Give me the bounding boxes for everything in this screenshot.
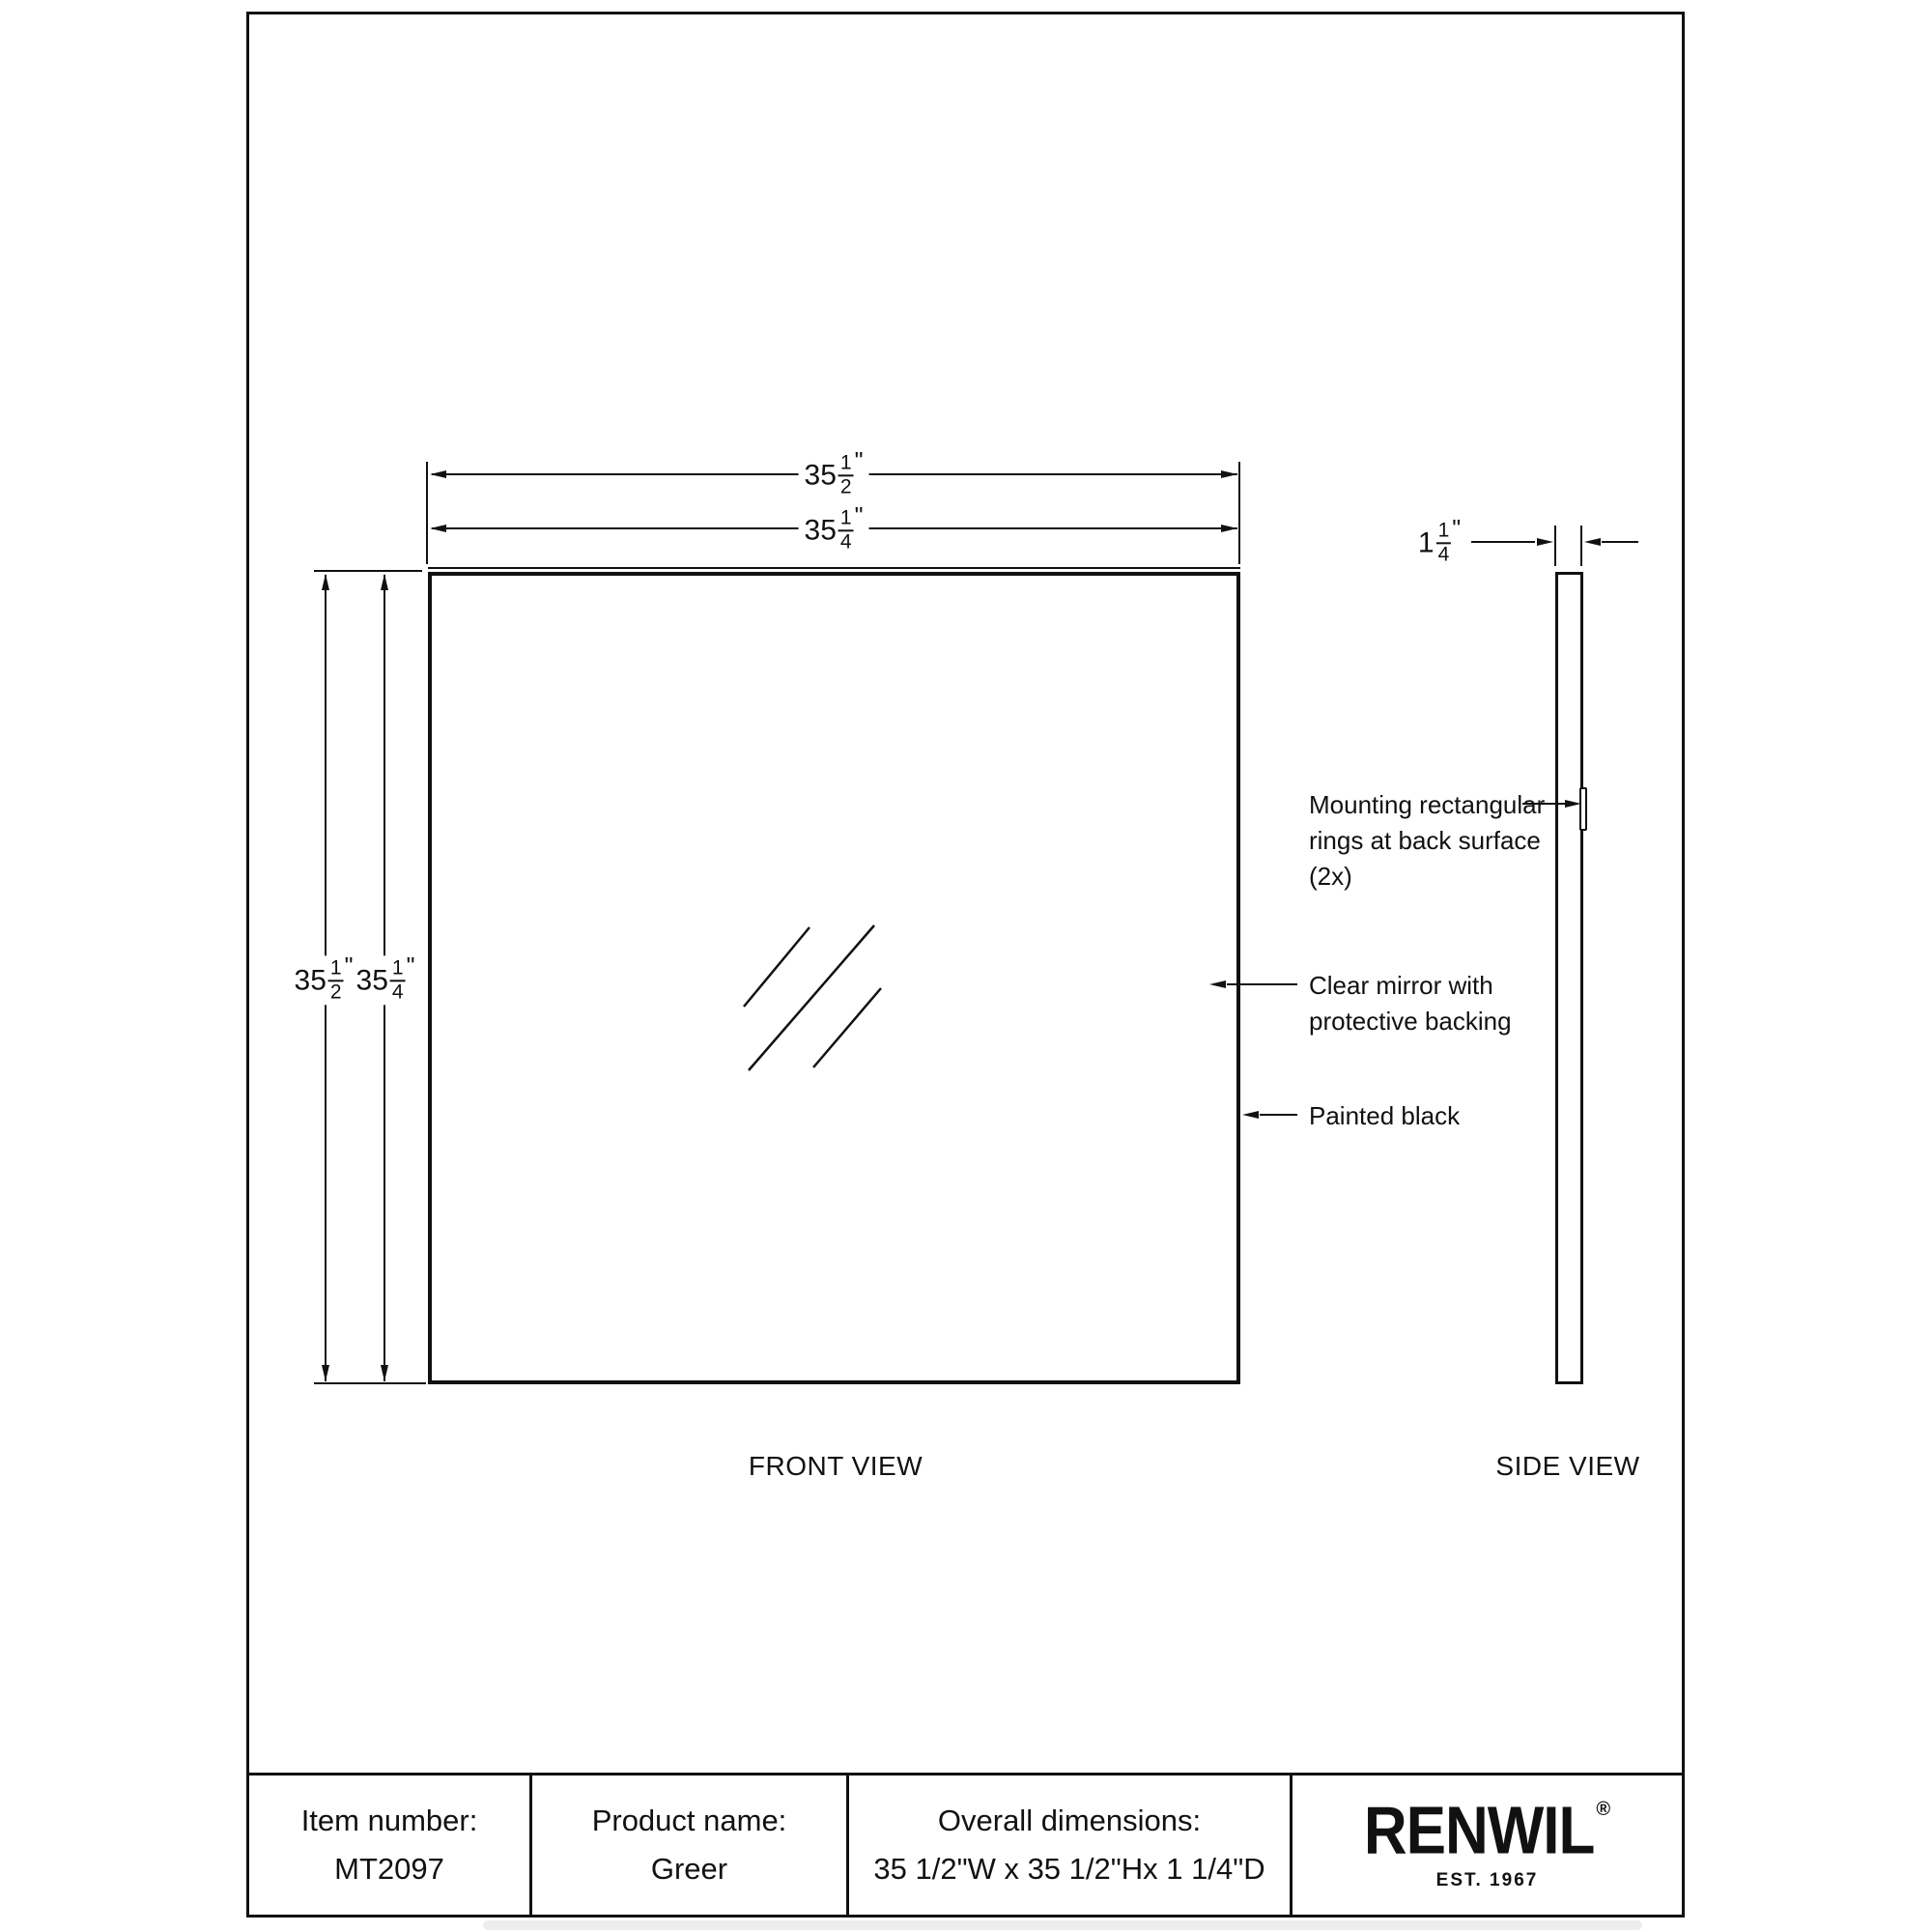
inch-mark: " bbox=[345, 955, 354, 980]
annotation-line: rings at back surface bbox=[1309, 823, 1545, 859]
arrowhead-right-icon bbox=[1565, 800, 1581, 808]
fraction-numerator: 1 bbox=[390, 957, 406, 981]
mirror-top-edge-line bbox=[428, 567, 1240, 569]
dim-line-depth-right bbox=[1602, 541, 1638, 543]
dim-line-depth-left bbox=[1471, 541, 1535, 543]
spec-cell-item-number: Item number: MT2097 bbox=[249, 1776, 529, 1915]
arrowhead-left-icon bbox=[1242, 1111, 1259, 1119]
dim-fraction: 12 bbox=[328, 957, 344, 1003]
fraction-numerator: 1 bbox=[1436, 520, 1452, 544]
overall-dimensions-value: 35 1/2"W x 35 1/2"Hx 1 1/4"D bbox=[873, 1845, 1264, 1893]
arrowhead-left-icon bbox=[1584, 538, 1601, 546]
extension-tick-side-left bbox=[1554, 526, 1556, 566]
product-name-value: Greer bbox=[651, 1845, 727, 1893]
inch-mark: " bbox=[407, 955, 415, 980]
inch-mark: " bbox=[855, 450, 864, 474]
mounting-ring-bracket bbox=[1579, 787, 1587, 831]
front-view-label: FRONT VIEW bbox=[749, 1451, 923, 1482]
overall-dimensions-label: Overall dimensions: bbox=[938, 1797, 1201, 1845]
extension-tick-side-right bbox=[1580, 526, 1582, 566]
item-number-label: Item number: bbox=[301, 1797, 478, 1845]
extension-line-top-right bbox=[1238, 462, 1240, 564]
fraction-numerator: 1 bbox=[838, 452, 854, 476]
arrowhead-down-icon bbox=[322, 1365, 329, 1381]
arrowhead-left-icon bbox=[430, 470, 446, 478]
fraction-denominator: 2 bbox=[328, 981, 344, 1004]
fraction-numerator: 1 bbox=[838, 507, 854, 531]
dim-label-height-inner: 3514" bbox=[354, 955, 418, 1005]
dim-whole: 1 bbox=[1418, 528, 1435, 557]
dim-fraction: 14 bbox=[390, 957, 406, 1003]
side-view-label: SIDE VIEW bbox=[1495, 1451, 1639, 1482]
dim-fraction: 14 bbox=[838, 507, 854, 553]
dim-whole: 35 bbox=[356, 966, 388, 995]
arrowhead-left-icon bbox=[1209, 980, 1226, 988]
fraction-denominator: 4 bbox=[390, 981, 406, 1004]
spec-cell-product-name: Product name: Greer bbox=[529, 1776, 846, 1915]
inch-mark: " bbox=[855, 505, 864, 529]
arrowhead-up-icon bbox=[322, 574, 329, 590]
arrowhead-right-icon bbox=[1221, 470, 1237, 478]
leader-line-painted-black bbox=[1260, 1114, 1297, 1116]
fraction-denominator: 2 bbox=[838, 476, 854, 498]
brand-wordmark: RENWIL bbox=[1364, 1798, 1595, 1864]
fraction-denominator: 4 bbox=[838, 531, 854, 554]
dim-fraction: 12 bbox=[838, 452, 854, 497]
fraction-numerator: 1 bbox=[328, 957, 344, 981]
dim-whole: 35 bbox=[805, 461, 837, 490]
dim-label-width-outer: 3512" bbox=[799, 450, 869, 499]
brand-logo: RENWIL ® bbox=[1364, 1802, 1610, 1861]
arrowhead-right-icon bbox=[1537, 538, 1553, 546]
dim-fraction: 14 bbox=[1436, 520, 1452, 565]
spec-cell-brand: RENWIL ® EST. 1967 bbox=[1290, 1776, 1682, 1915]
annotation-line: Painted black bbox=[1309, 1098, 1460, 1134]
arrowhead-right-icon bbox=[1221, 525, 1237, 532]
annotation-line: (2x) bbox=[1309, 859, 1545, 895]
item-number-value: MT2097 bbox=[334, 1845, 444, 1893]
registered-trademark-icon: ® bbox=[1596, 1800, 1610, 1819]
product-name-label: Product name: bbox=[592, 1797, 787, 1845]
extension-line-left-bottom bbox=[314, 1382, 426, 1384]
annotation-line: protective backing bbox=[1309, 1004, 1512, 1039]
spec-table: Item number: MT2097 Product name: Greer … bbox=[249, 1773, 1682, 1915]
leader-line-clear-mirror bbox=[1227, 983, 1297, 985]
extension-line-top-left bbox=[426, 462, 428, 564]
arrowhead-down-icon bbox=[381, 1365, 388, 1381]
side-view-mirror-outline bbox=[1555, 572, 1583, 1384]
annotation-painted-black: Painted black bbox=[1309, 1098, 1460, 1134]
leader-line-mounting bbox=[1522, 803, 1567, 805]
scan-shadow bbox=[483, 1920, 1642, 1930]
annotation-mounting-rings: Mounting rectangular rings at back surfa… bbox=[1309, 787, 1545, 895]
inch-mark: " bbox=[1452, 518, 1461, 542]
extension-line-left-top bbox=[314, 570, 422, 572]
arrowhead-left-icon bbox=[430, 525, 446, 532]
dim-whole: 35 bbox=[805, 516, 837, 545]
annotation-clear-mirror: Clear mirror with protective backing bbox=[1309, 968, 1512, 1039]
dim-label-width-inner: 3514" bbox=[799, 505, 869, 554]
dim-whole: 35 bbox=[295, 966, 327, 995]
dim-label-depth: 114" bbox=[1412, 518, 1466, 567]
fraction-denominator: 4 bbox=[1436, 544, 1452, 566]
brand-established: EST. 1967 bbox=[1436, 1871, 1539, 1889]
dim-label-height-outer: 3512" bbox=[292, 955, 356, 1005]
arrowhead-up-icon bbox=[381, 574, 388, 590]
annotation-line: Clear mirror with bbox=[1309, 968, 1512, 1004]
glass-reflection-hatch bbox=[428, 572, 1240, 1384]
spec-sheet-canvas: 3512" 3514" 3512" 3514" 114" Mounting re… bbox=[0, 0, 1932, 1932]
annotation-line: Mounting rectangular bbox=[1309, 787, 1545, 823]
spec-cell-overall-dimensions: Overall dimensions: 35 1/2"W x 35 1/2"Hx… bbox=[846, 1776, 1290, 1915]
